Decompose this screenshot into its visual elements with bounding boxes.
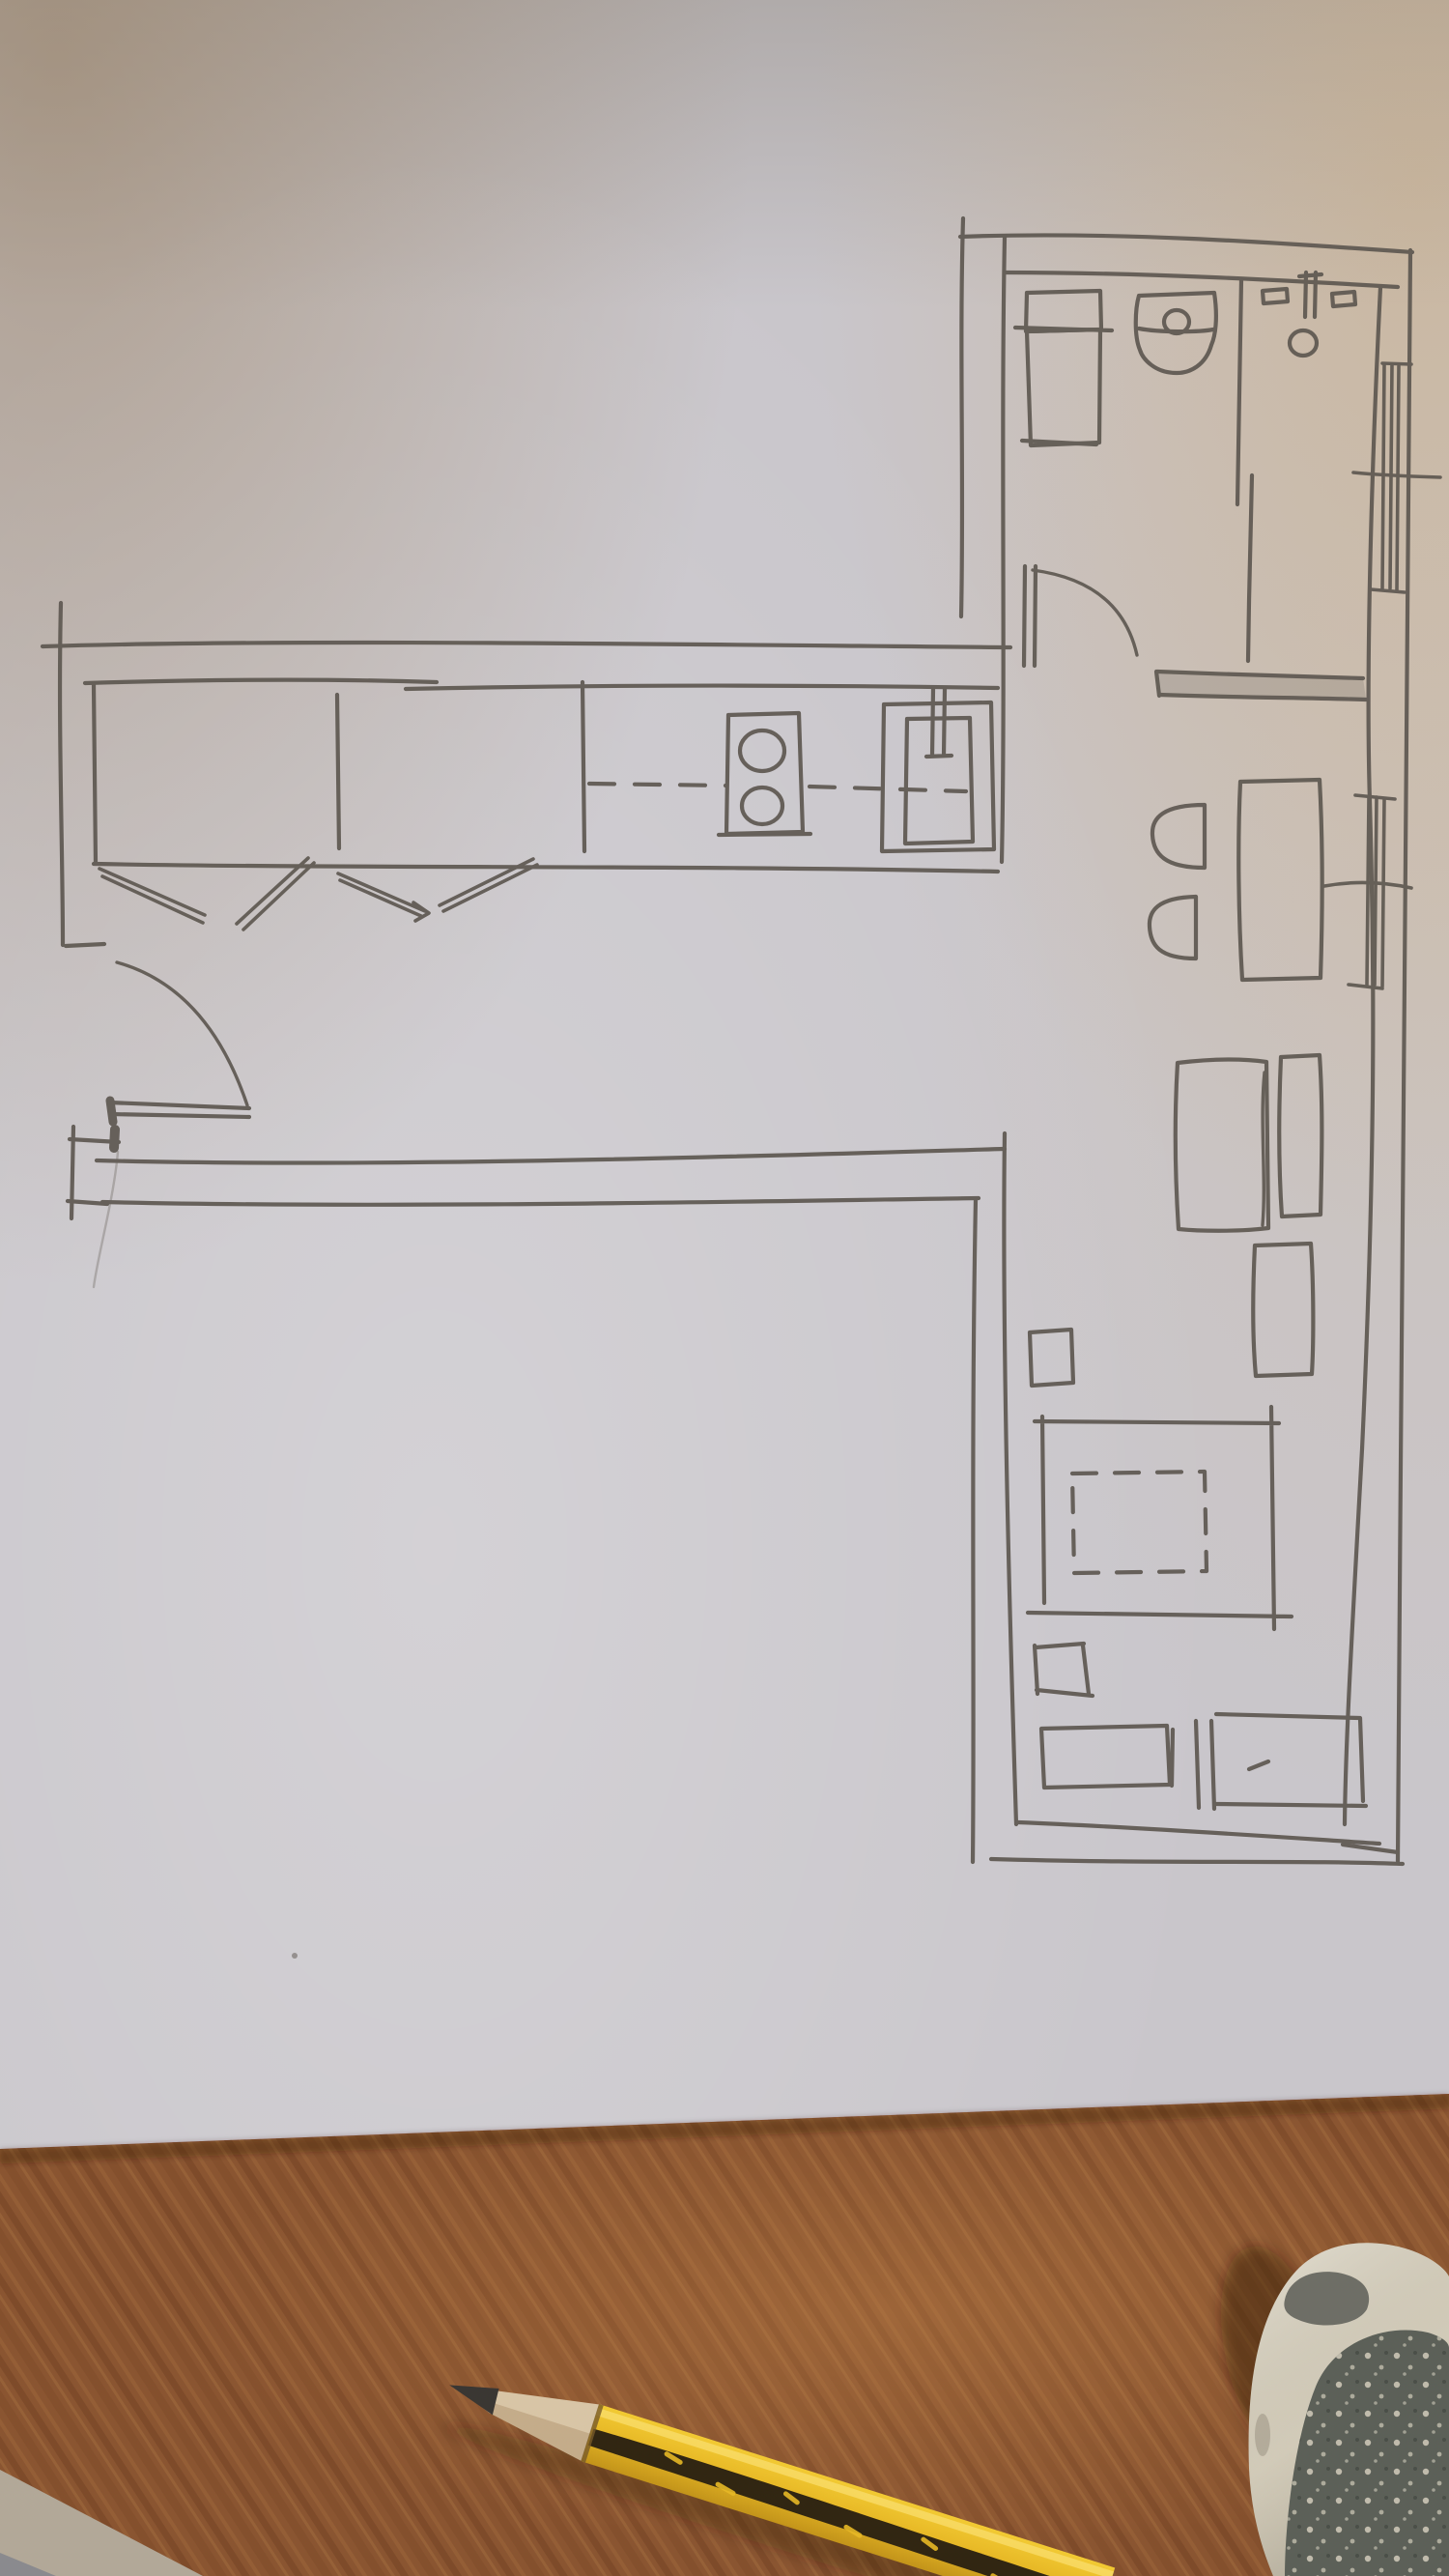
floor-plan-photo	[0, 0, 1449, 2576]
wall-kitchen-left-tick	[66, 944, 104, 946]
entry-door-post	[114, 1130, 115, 1148]
hob-base-line	[719, 834, 810, 835]
counter-divider-2	[582, 682, 584, 851]
counter-divider-1	[337, 695, 339, 848]
pencil-speck	[292, 1953, 298, 1959]
stone-smudge	[1255, 2414, 1270, 2456]
counter-left-edge	[94, 684, 96, 864]
entry-door-hinge	[110, 1101, 113, 1122]
scene-svg	[0, 0, 1449, 2576]
wall-bath-bottom-cap	[1156, 672, 1159, 696]
wall-bath-left-inner	[1002, 238, 1005, 862]
wall-bath-left-outer	[961, 218, 963, 616]
wall-stub-top-tick	[70, 1139, 119, 1142]
bed-edge-line	[1263, 1073, 1264, 1225]
